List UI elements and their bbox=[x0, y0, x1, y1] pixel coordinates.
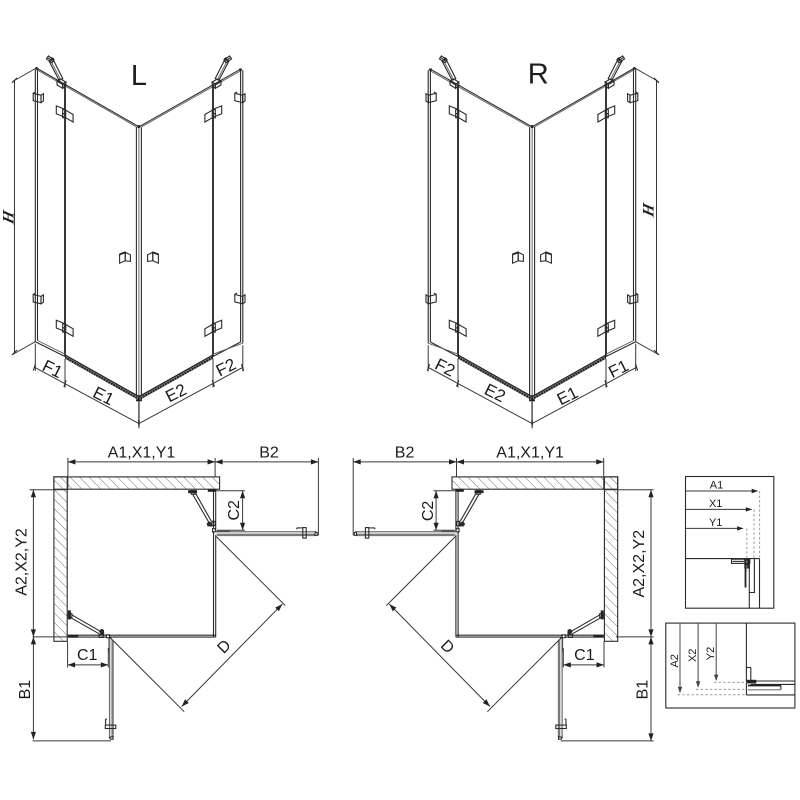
svg-text:F1: F1 bbox=[605, 356, 631, 382]
svg-text:D: D bbox=[214, 637, 234, 657]
svg-text:E1: E1 bbox=[90, 383, 117, 409]
svg-text:E1: E1 bbox=[554, 383, 581, 409]
svg-text:R: R bbox=[528, 58, 549, 90]
svg-text:B2: B2 bbox=[259, 444, 279, 461]
svg-text:F2: F2 bbox=[432, 355, 458, 381]
svg-text:B1: B1 bbox=[634, 680, 651, 700]
svg-text:A1,X1,Y1: A1,X1,Y1 bbox=[496, 444, 564, 461]
svg-text:C2: C2 bbox=[226, 500, 243, 521]
svg-text:D: D bbox=[437, 637, 457, 657]
svg-text:C2: C2 bbox=[420, 501, 437, 522]
svg-text:X2: X2 bbox=[687, 649, 699, 662]
svg-text:F1: F1 bbox=[39, 356, 65, 382]
svg-text:A2: A2 bbox=[669, 654, 681, 667]
svg-text:F2: F2 bbox=[213, 355, 239, 381]
svg-text:X1: X1 bbox=[709, 498, 722, 510]
svg-text:Y1: Y1 bbox=[709, 517, 722, 529]
svg-text:B1: B1 bbox=[17, 680, 34, 700]
svg-text:A2,X2,Y2: A2,X2,Y2 bbox=[631, 530, 648, 598]
svg-text:L: L bbox=[131, 60, 147, 92]
svg-text:A1: A1 bbox=[710, 480, 723, 492]
svg-text:B2: B2 bbox=[395, 444, 415, 461]
svg-text:A1,X1,Y1: A1,X1,Y1 bbox=[108, 444, 176, 461]
svg-text:Y2: Y2 bbox=[705, 647, 717, 660]
svg-text:A2,X2,Y2: A2,X2,Y2 bbox=[13, 528, 30, 596]
svg-text:C1: C1 bbox=[77, 647, 98, 664]
svg-text:C1: C1 bbox=[574, 647, 595, 664]
svg-text:H: H bbox=[640, 200, 658, 219]
